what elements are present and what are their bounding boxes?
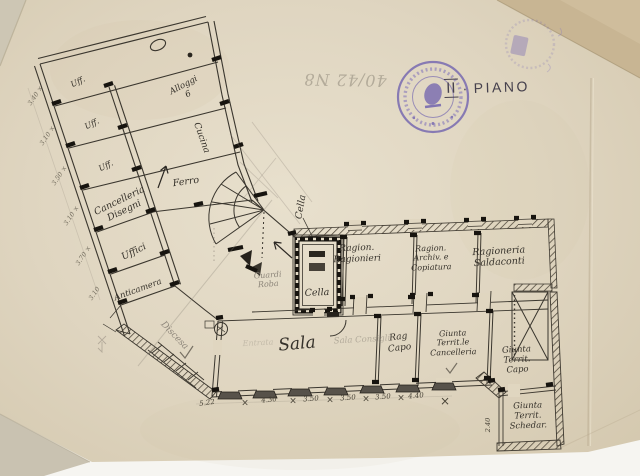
floor-numeral: II <box>444 78 459 97</box>
scanned-plan-photo: Uff. Uff. Uff. Alloggi 6 Cucina Cancelle… <box>0 0 640 476</box>
entrance-stair <box>103 305 216 399</box>
fold-corner-top-left <box>0 0 26 66</box>
floor-title-annotation: II · PIANO <box>444 76 530 98</box>
corridor-walls <box>218 291 548 321</box>
floor-separator: · <box>462 80 470 96</box>
southeast-walls <box>476 292 564 451</box>
fold-corner-bottom-left <box>0 414 90 476</box>
floor-word: PIANO <box>473 78 530 96</box>
inverted-archival-number: 40/42 N8 <box>303 70 387 90</box>
stair-x-brace <box>512 292 548 360</box>
